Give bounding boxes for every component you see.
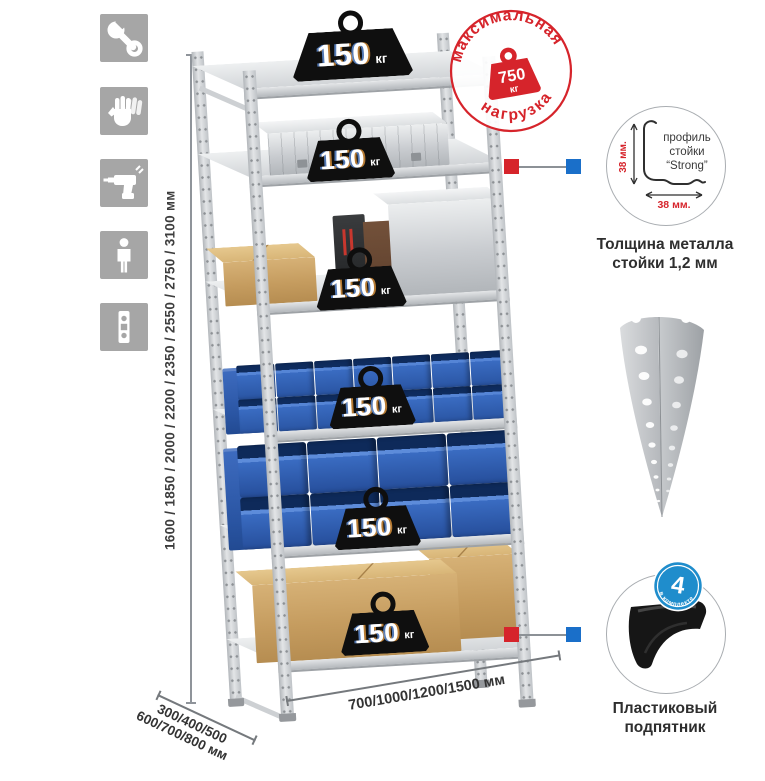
vertical-dim-arrow xyxy=(631,124,637,184)
callout-blue-square xyxy=(566,159,581,174)
post-profile-figure: 38 мм. 38 мм. профиль стойки “Strong” xyxy=(606,106,726,226)
rack-foot xyxy=(518,699,535,708)
profile-label-1: профиль xyxy=(663,132,711,144)
horizontal-dim-arrow xyxy=(646,192,702,198)
stamp-weight-unit: кг xyxy=(509,83,520,95)
shelf-load-weight: 150кг xyxy=(326,363,415,429)
blue-bin xyxy=(433,386,473,422)
case-latch xyxy=(411,153,421,162)
shelf-load-weight: 150кг xyxy=(289,7,413,82)
blue-bin xyxy=(277,395,317,431)
metal-box xyxy=(388,198,507,297)
profile-label-3: “Strong” xyxy=(666,160,708,172)
max-load-stamp: максимальная нагрузка 750 кг xyxy=(438,0,584,144)
shelf-load-weight: 150кг xyxy=(338,589,430,656)
load-unit: кг xyxy=(397,524,408,537)
wrench-icon xyxy=(100,14,148,62)
profile-label-2: стойки xyxy=(669,146,704,158)
load-value: 150 xyxy=(353,616,400,650)
load-unit: кг xyxy=(392,403,403,416)
load-value: 150 xyxy=(346,511,393,545)
box-top xyxy=(235,558,457,586)
callout-red-square xyxy=(504,159,519,174)
rack-foot xyxy=(228,698,244,707)
load-unit: кг xyxy=(404,629,415,642)
blue-bin xyxy=(431,352,471,388)
perforated-post-icon xyxy=(100,303,148,351)
profile-dim-vertical: 38 мм. xyxy=(618,141,629,173)
load-value: 150 xyxy=(316,35,371,74)
callout-line xyxy=(519,166,567,168)
plastic-foot-caption: Пластиковый подпятник xyxy=(575,700,755,738)
height-dimension-label: 1600 / 1850 / 2000 / 2200 / 2350 / 2550 … xyxy=(158,150,182,590)
callout-line xyxy=(519,634,567,636)
profile-dim-horizontal: 38 мм. xyxy=(657,199,690,211)
blue-bin xyxy=(275,361,315,397)
load-unit: кг xyxy=(380,284,391,297)
post-thickness-caption: Толщина металла стойки 1,2 мм xyxy=(575,236,755,274)
person-icon xyxy=(100,231,148,279)
load-unit: кг xyxy=(375,50,388,66)
kit-count-badge: 4 в комплекте xyxy=(648,556,707,615)
shelf-load-weight: 150кг xyxy=(332,484,421,550)
blue-bin xyxy=(377,434,449,490)
gloves-icon xyxy=(100,87,148,135)
caption-line: Пластиковый xyxy=(575,700,755,719)
caption-line: Толщина металла xyxy=(575,236,755,255)
angle-post-image xyxy=(600,312,726,527)
load-value: 150 xyxy=(319,143,366,177)
caption-line: подпятник xyxy=(575,719,755,738)
load-value: 150 xyxy=(341,390,388,424)
shelf-load-weight: 150кг xyxy=(304,116,395,182)
product-diagram: 1600 / 1850 / 2000 / 2200 / 2350 / 2550 … xyxy=(0,0,765,765)
caption-line: стойки 1,2 мм xyxy=(575,255,755,274)
cardboard-box xyxy=(223,257,317,306)
callout-red-square xyxy=(504,627,519,642)
drill-icon xyxy=(100,159,148,207)
load-value: 150 xyxy=(330,272,377,306)
box-top xyxy=(373,186,501,206)
blue-bin xyxy=(307,438,379,494)
shelf-load-weight: 150кг xyxy=(313,245,406,311)
load-unit: кг xyxy=(370,156,381,169)
callout-blue-square xyxy=(566,627,581,642)
